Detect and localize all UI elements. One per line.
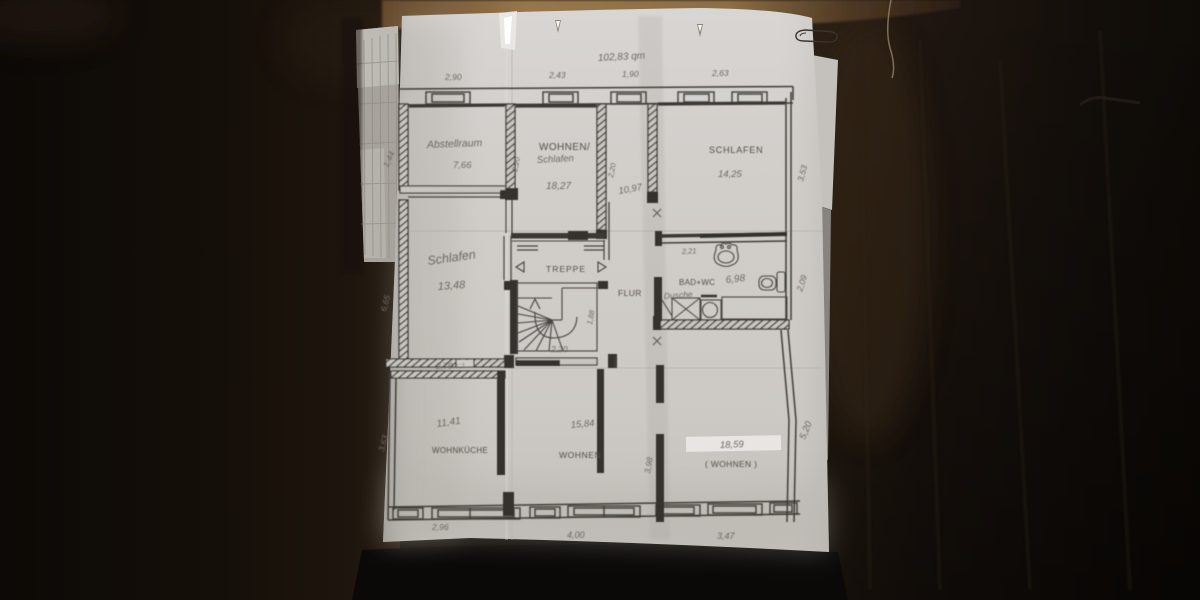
svg-text:1,90: 1,90 xyxy=(622,69,639,79)
svg-text:2,21: 2,21 xyxy=(681,246,697,256)
svg-text:2,96: 2,96 xyxy=(431,522,449,532)
svg-text:18,59: 18,59 xyxy=(720,439,745,451)
svg-text:2,63: 2,63 xyxy=(711,68,729,78)
svg-text:7,66: 7,66 xyxy=(453,160,472,171)
svg-text:Schlafen: Schlafen xyxy=(537,153,575,166)
svg-text:4,00: 4,00 xyxy=(567,530,585,540)
svg-text:WOHNEN/: WOHNEN/ xyxy=(539,142,590,153)
svg-text:2,20: 2,20 xyxy=(550,344,568,354)
svg-text:FLUR: FLUR xyxy=(618,288,642,298)
svg-text:6,98: 6,98 xyxy=(725,273,746,286)
svg-text:Dusche: Dusche xyxy=(663,289,693,301)
svg-text:3,47: 3,47 xyxy=(717,531,736,541)
svg-text:( WOHNEN ): ( WOHNEN ) xyxy=(705,459,757,469)
svg-text:15,84: 15,84 xyxy=(570,418,595,431)
svg-text:BAD+WC: BAD+WC xyxy=(679,278,715,287)
svg-text:18,27: 18,27 xyxy=(546,181,571,192)
svg-text:2,78 ↑:↑: 2,78 ↑:↑ xyxy=(435,360,466,371)
svg-text:2,90: 2,90 xyxy=(444,72,462,82)
svg-text:TREPPE: TREPPE xyxy=(546,264,586,274)
svg-text:SCHLAFEN: SCHLAFEN xyxy=(709,145,763,155)
svg-text:13,48: 13,48 xyxy=(437,279,466,293)
svg-text:WOHNKÜCHE: WOHNKÜCHE xyxy=(432,446,488,455)
svg-text:2,43: 2,43 xyxy=(548,70,566,80)
svg-text:14,25: 14,25 xyxy=(718,169,742,180)
svg-text:WOHNEN: WOHNEN xyxy=(559,450,601,460)
svg-text:Abstellraum: Abstellraum xyxy=(426,137,483,151)
